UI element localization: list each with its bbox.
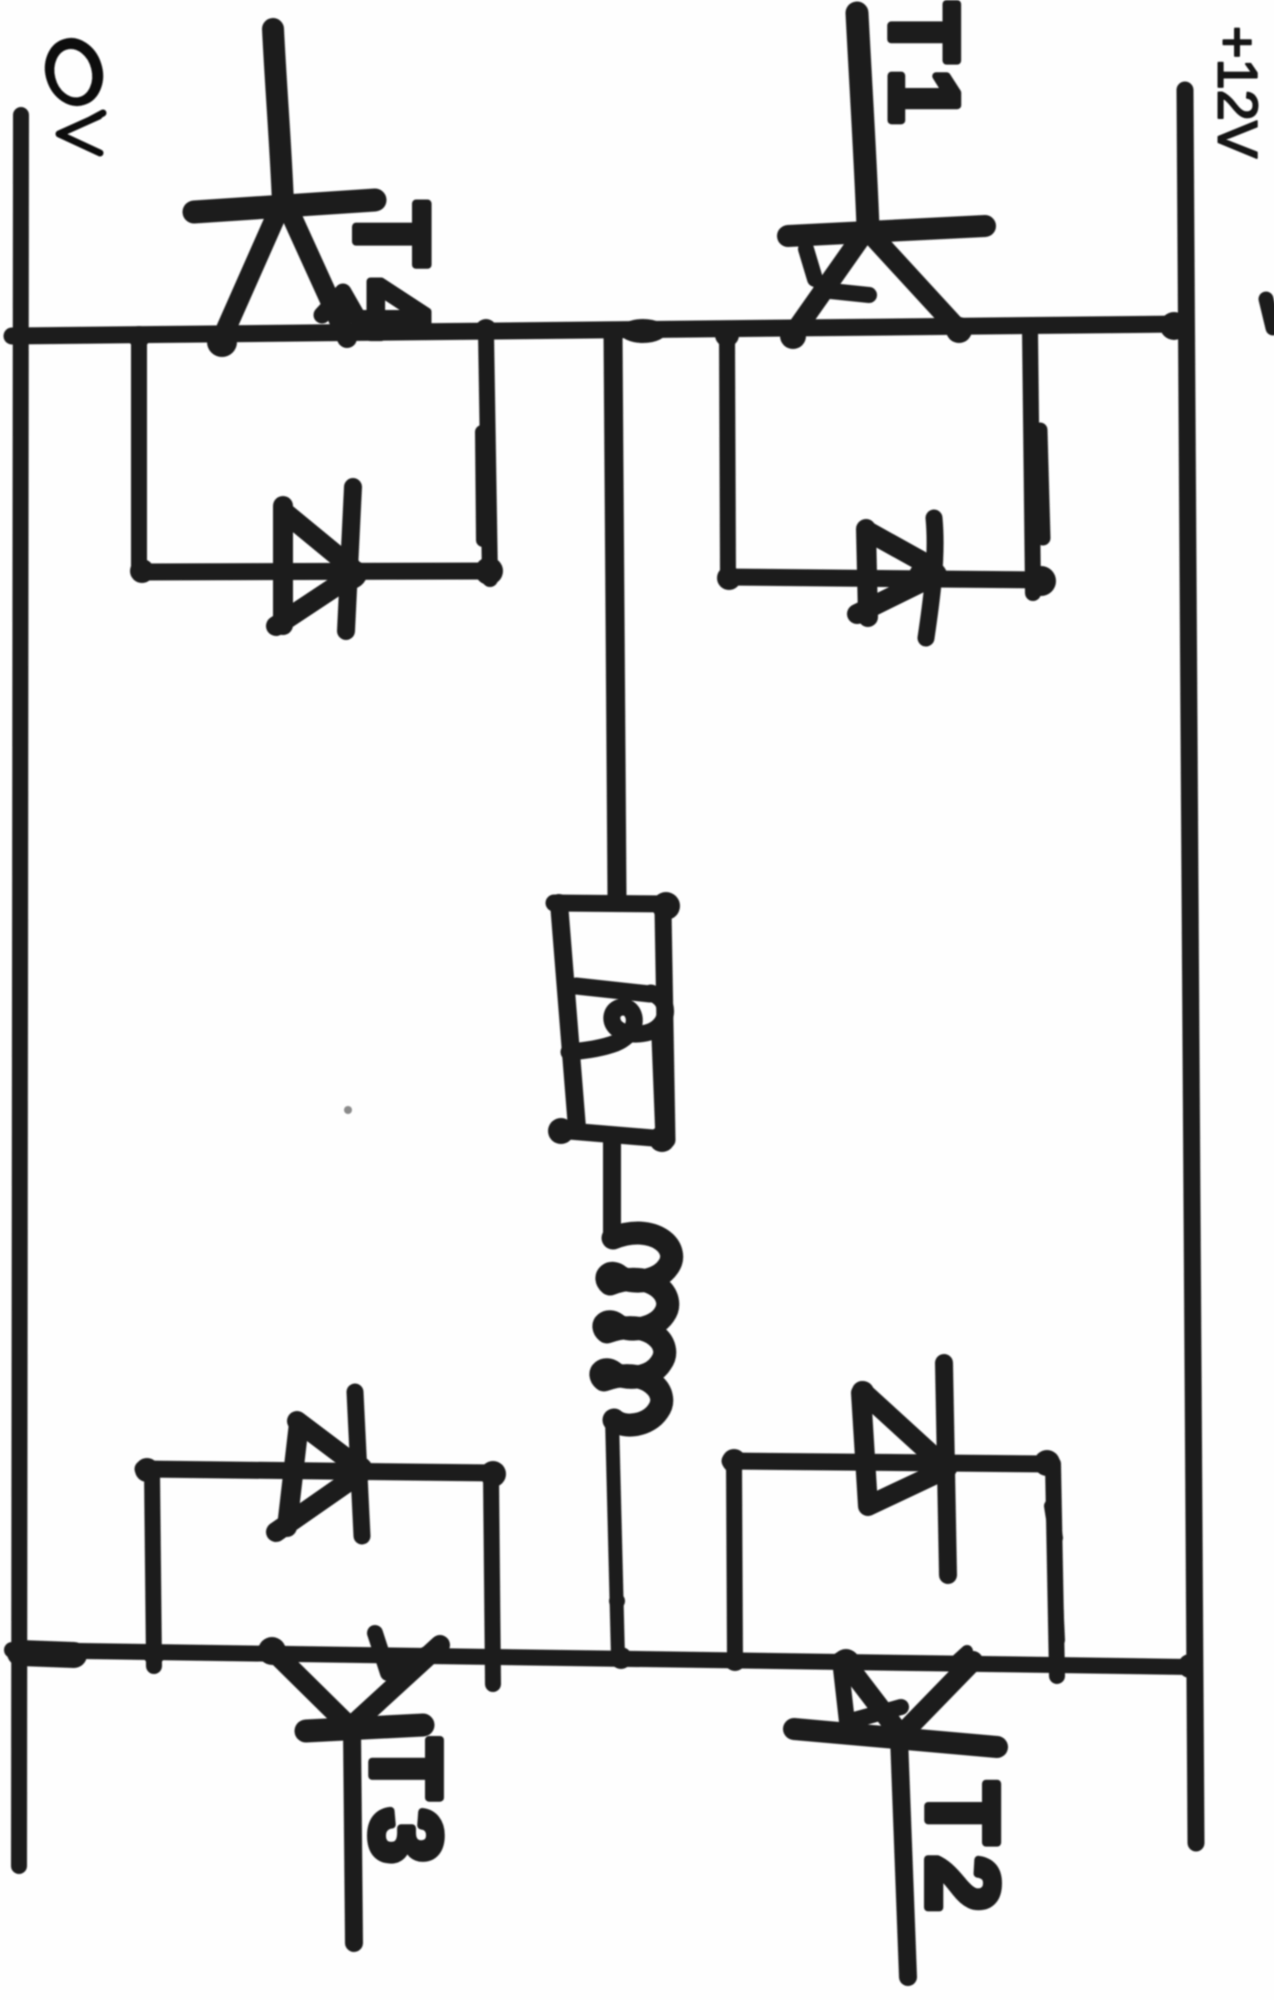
svg-text:T4: T4 bbox=[333, 202, 449, 351]
svg-text:+12V: +12V bbox=[1207, 26, 1270, 159]
svg-text:T1: T1 bbox=[871, 3, 978, 131]
svg-text:T3: T3 bbox=[351, 1739, 461, 1873]
svg-text:T2: T2 bbox=[906, 1783, 1018, 1924]
